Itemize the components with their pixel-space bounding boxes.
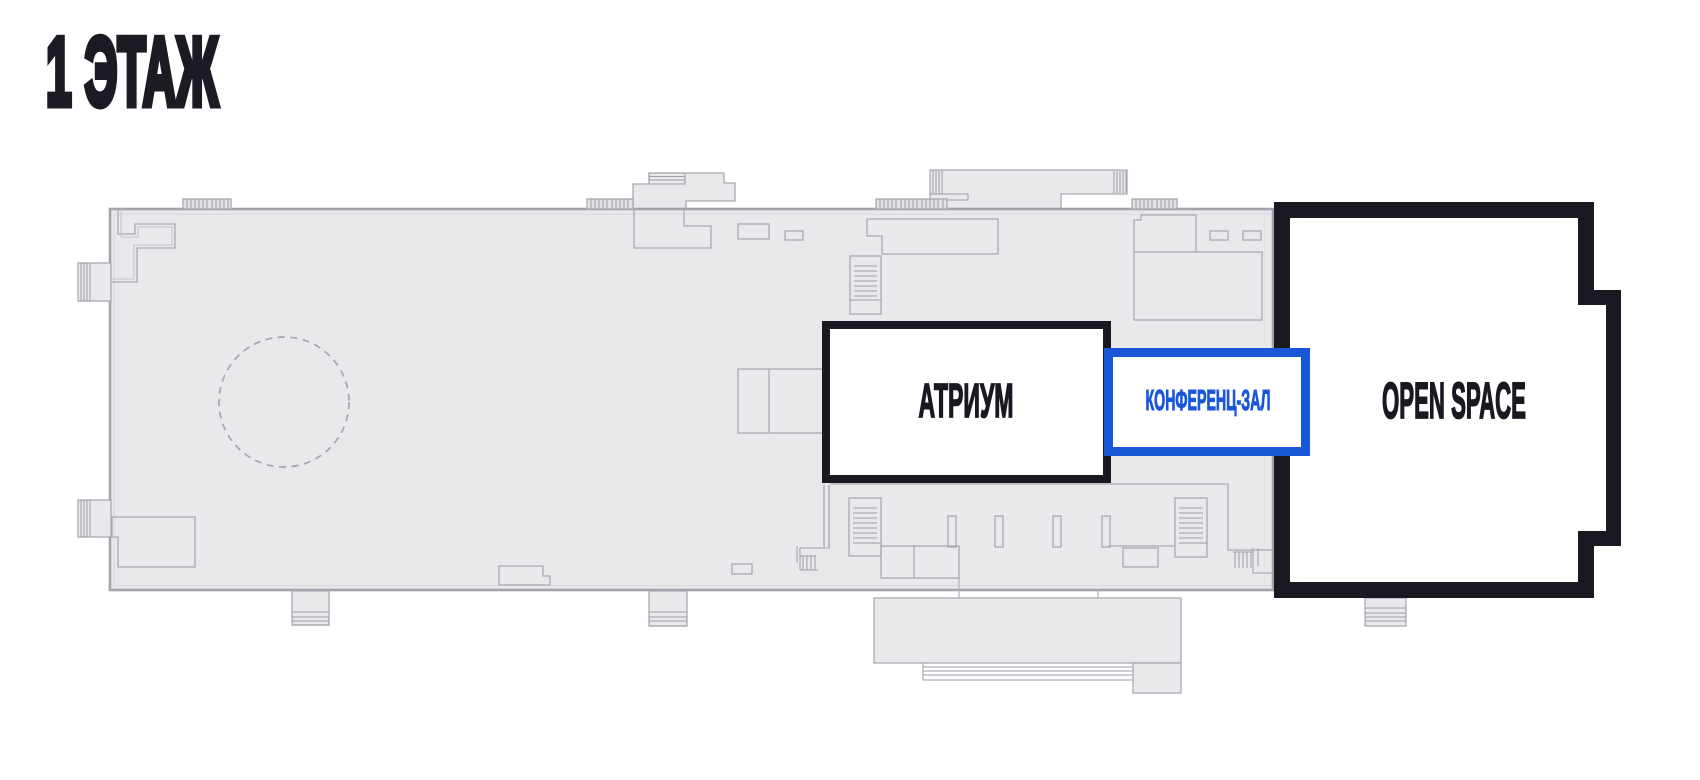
svg-text:1 ЭТАЖ: 1 ЭТАЖ <box>46 17 219 126</box>
svg-text:АТРИУМ: АТРИУМ <box>919 375 1014 428</box>
svg-text:КОНФЕРЕНЦ-ЗАЛ: КОНФЕРЕНЦ-ЗАЛ <box>1146 385 1271 417</box>
svg-text:OPEN SPACE: OPEN SPACE <box>1382 372 1526 429</box>
